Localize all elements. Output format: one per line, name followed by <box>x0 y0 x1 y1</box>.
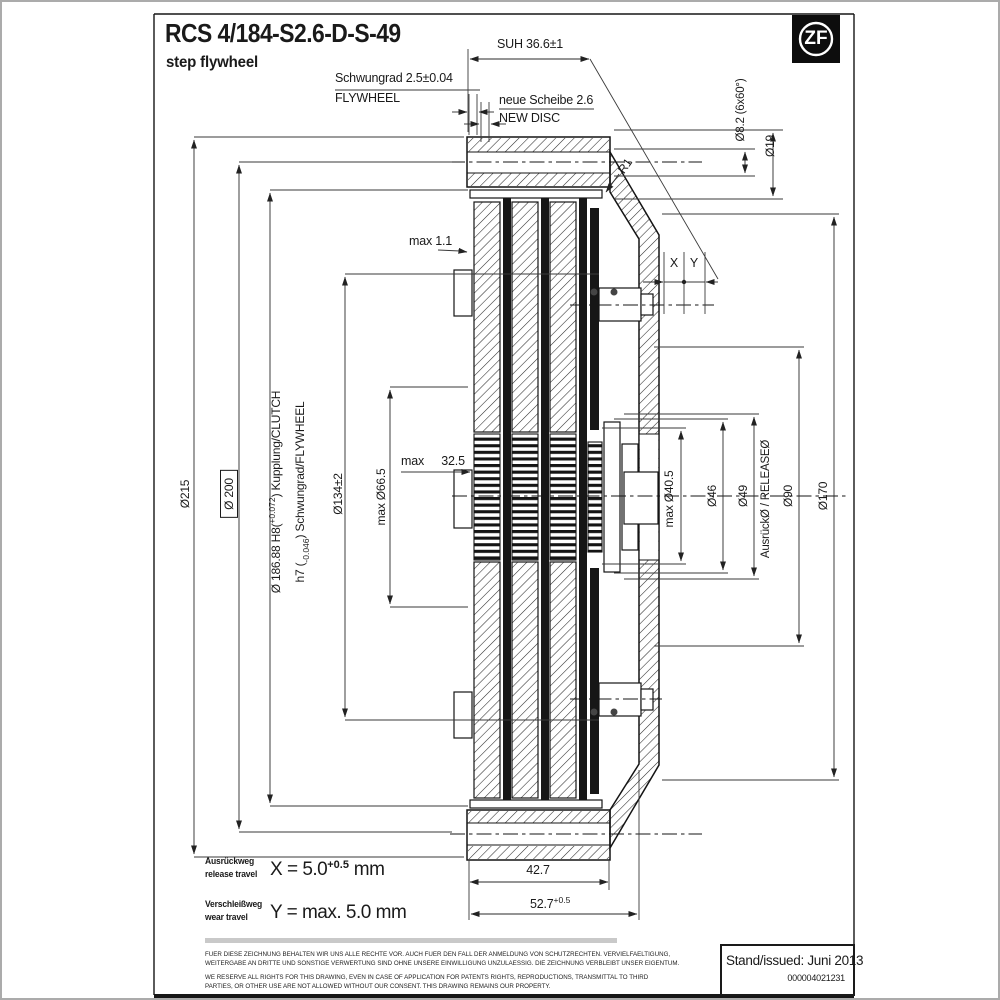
dim-52-7-tol: +0.5 <box>554 895 571 905</box>
dim-42-7: 42.7 <box>526 863 550 877</box>
dim-d18688-prefix: Ø 186.88 H8( <box>269 524 283 594</box>
doc-number: 000004021231 <box>725 973 845 983</box>
dim-d46: Ø46 <box>705 485 719 507</box>
dim-d90: Ø90 <box>781 485 795 507</box>
dim-bolt-circle: Ø8.2 (6x60°) <box>735 79 747 142</box>
dim-max-32-5: max 32.5 <box>401 454 465 468</box>
dim-max-1-1: max 1.1 <box>409 234 452 248</box>
release-travel-en: release travel <box>205 870 257 880</box>
dim-h7: h7 (-0.046) Schwungrad/FLYWHEEL <box>293 402 311 583</box>
dim-new-disc-en: NEW DISC <box>499 111 560 125</box>
dim-d49: Ø49 <box>736 485 750 507</box>
dim-h7-tol: -0.046 <box>301 538 311 562</box>
dim-flywheel-de: Schwungrad 2.5±0.04 <box>335 71 453 85</box>
wear-travel-en: wear travel <box>205 913 248 923</box>
release-formula-value: X = 5.0 <box>270 859 327 880</box>
issued-value: Juni 2013 <box>807 953 863 968</box>
dim-h7-prefix: h7 ( <box>293 563 307 583</box>
release-formula-unit: mm <box>354 859 385 880</box>
dim-d200-label: Ø 200 <box>220 470 238 518</box>
cross-section <box>454 137 659 860</box>
legal-de-line2: WEITERGABE AN DRITTE UND SONSTIGE VERWER… <box>205 960 679 967</box>
release-travel-de: Ausrückweg <box>205 857 254 867</box>
wear-travel-de: Verschleißweg <box>205 900 262 910</box>
dim-pilot-19: Ø19 <box>763 135 777 157</box>
dim-d200-boxed: Ø 200 <box>222 470 236 518</box>
drawing-canvas <box>2 2 1000 1000</box>
dim-x-label: X <box>670 256 678 270</box>
dim-d18688-suffix: ) Kupplung/CLUTCH <box>269 391 283 498</box>
dim-new-disc-de: neue Scheibe 2.6 <box>499 93 593 107</box>
dim-h7-suffix: ) Schwungrad/FLYWHEEL <box>293 402 307 539</box>
page-subtitle: step flywheel <box>166 54 258 72</box>
illegible-text-smudge <box>205 938 617 943</box>
dim-d134: Ø134±2 <box>331 473 345 514</box>
issued-label: Stand/issued: <box>726 953 804 968</box>
dim-d18688: Ø 186.88 H8(+0.072) Kupplung/CLUTCH <box>267 391 283 594</box>
dim-suh: SUH 36.6±1 <box>497 37 563 51</box>
dim-d170: Ø170 <box>816 482 830 511</box>
issued-line: Stand/issued: Juni 2013 <box>726 953 863 968</box>
dim-d215: Ø215 <box>178 480 192 509</box>
dim-d665: max Ø66.5 <box>374 469 388 526</box>
dim-flywheel-en: FLYWHEEL <box>335 91 400 105</box>
dim-release-label: AusrückØ / RELEASEØ <box>760 440 772 558</box>
dim-d405: max Ø40.5 <box>662 471 676 528</box>
dim-52-7: 52.7+0.5 <box>530 895 570 911</box>
dim-52-7-value: 52.7 <box>530 897 554 911</box>
release-travel-formula: X = 5.0+0.5 mm <box>270 859 384 881</box>
technical-drawing-page: RCS 4/184-S2.6-D-S-49 step flywheel ZF S… <box>0 0 1000 1000</box>
wear-travel-formula: Y = max. 5.0 mm <box>270 902 406 924</box>
legal-de-line1: FUER DIESE ZEICHNUNG BEHALTEN WIR UNS AL… <box>205 951 670 958</box>
zf-logo-text: ZF <box>804 28 827 50</box>
dim-d18688-tol: +0.072 <box>267 497 277 523</box>
dim-y-label: Y <box>690 256 698 270</box>
legal-en-line2: PARTIES, OR OTHER USE ARE NOT ALLOWED WI… <box>205 983 550 990</box>
legal-en-line1: WE RESERVE ALL RIGHTS FOR THIS DRAWING, … <box>205 974 648 981</box>
page-title: RCS 4/184-S2.6-D-S-49 <box>165 18 401 49</box>
release-formula-tol: +0.5 <box>327 859 349 871</box>
